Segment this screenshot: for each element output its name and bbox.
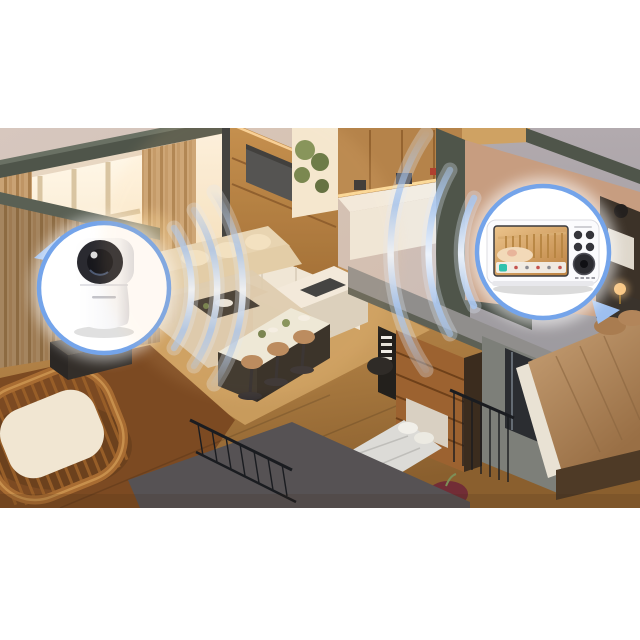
control-button (574, 243, 582, 251)
toolbar-dot-icon (558, 266, 562, 270)
lens-glint (91, 252, 98, 259)
warm-light-overlay (100, 100, 400, 400)
toolbar-dot-icon (536, 266, 540, 270)
toolbar-dot-icon (525, 266, 529, 270)
control-button (574, 231, 582, 239)
control-button (586, 231, 594, 239)
pillow (414, 432, 434, 444)
floor-edge-shadow (0, 494, 640, 508)
screen-toolbar (496, 262, 566, 273)
parent-monitor-device (487, 220, 599, 295)
isometric-home-render (0, 0, 640, 640)
brand-mark-smudge (574, 226, 592, 228)
menu-tile-icon (499, 264, 507, 272)
pillow (398, 422, 418, 434)
baby-on-screen (507, 250, 517, 257)
product-scene-canvas (0, 0, 640, 640)
control-button (586, 243, 594, 251)
toolbar-dot-icon (514, 266, 518, 270)
planter (367, 357, 393, 375)
toolbar-dot-icon (547, 266, 551, 270)
